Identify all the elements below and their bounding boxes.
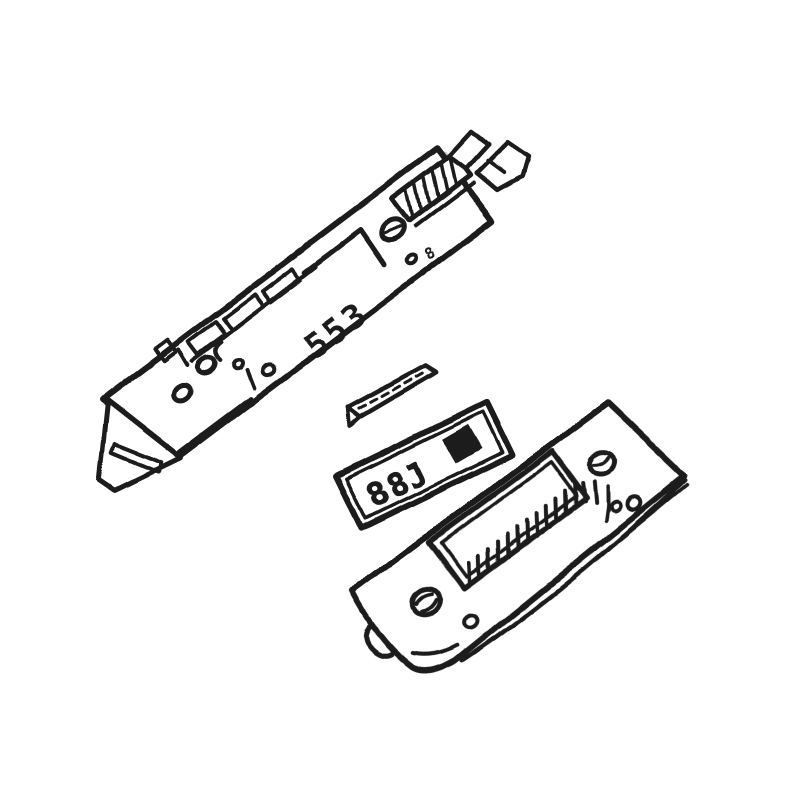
drawing-root: 553 8: [57, 100, 695, 701]
front-cover-part: [337, 392, 695, 702]
spacer-strip-part: [340, 362, 441, 426]
diagram-svg: 553 8: [0, 0, 800, 800]
spacer-strip-outline: [346, 362, 439, 420]
exploded-parts-diagram: 553 8: [0, 0, 800, 800]
